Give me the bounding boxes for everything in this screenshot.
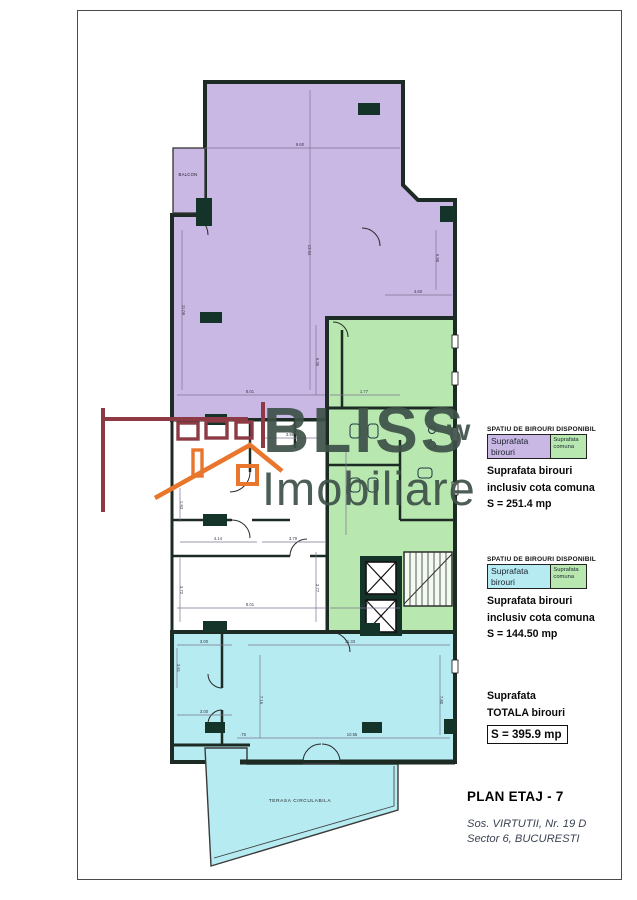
- legend-office-cell: Suprafata birouri: [488, 565, 551, 588]
- dimension-label: 3.72: [179, 586, 184, 595]
- balcony-label: BALCON: [178, 172, 197, 177]
- offer2-line1: Suprafata birouri: [487, 593, 596, 610]
- terrace-label: TERASA CIRCULABILA: [269, 798, 332, 804]
- offer2-legend: Suprafata birouri Suprafata comuna: [487, 564, 587, 589]
- dimension-label: 4.10: [345, 486, 350, 495]
- floor-plan-page: 9.6013.6411.095.904.605.368.011.773.984.…: [0, 0, 637, 900]
- dimension-label: .75: [240, 732, 246, 737]
- dimension-label: 8.01: [246, 602, 255, 607]
- dimension-label: 3.00: [200, 639, 209, 644]
- total-line1: Suprafata: [487, 688, 568, 705]
- dimension-label: 3.61: [176, 664, 181, 673]
- dimension-label: 1.77: [360, 389, 369, 394]
- offer2-line2: inclusiv cota comuna: [487, 610, 596, 627]
- terrace: [205, 748, 398, 866]
- dimension-label: 5.90: [435, 254, 440, 263]
- total-line2: TOTALA birouri: [487, 705, 568, 722]
- staircase: [404, 552, 452, 606]
- offer1-line2: inclusiv cota comuna: [487, 480, 596, 497]
- dimension-label: 3.77: [315, 584, 320, 593]
- dimension-label: 13.64: [307, 245, 312, 256]
- offer1-legend: Suprafata birouri Suprafata comuna: [487, 434, 587, 459]
- dimension-label: 11.33: [345, 639, 356, 644]
- dimension-label: 7.80: [439, 696, 444, 705]
- offer1-line1: Suprafata birouri: [487, 463, 596, 480]
- offer-block-1: SPATIU DE BIROURI DISPONIBIL Suprafata b…: [487, 426, 596, 513]
- dimension-label: 1.77: [360, 602, 369, 607]
- plan-title: PLAN ETAJ - 7: [467, 789, 564, 804]
- offer-block-2: SPATIU DE BIROURI DISPONIBIL Suprafata b…: [487, 556, 596, 643]
- offer2-header: SPATIU DE BIROURI DISPONIBIL: [487, 556, 596, 563]
- dimension-label: 7.16: [259, 696, 264, 705]
- dimension-label: 1.93: [179, 501, 184, 510]
- dimension-label: 5.36: [315, 358, 320, 367]
- cyan-region: [172, 632, 455, 866]
- address-line2: Sector 6, BUCURESTI: [467, 832, 586, 847]
- legend-common-cell: Suprafata comuna: [551, 565, 586, 588]
- dimension-label: 4.60: [414, 289, 423, 294]
- legend-office-cell: Suprafata birouri: [488, 435, 551, 458]
- dimension-label: 3.79: [289, 536, 298, 541]
- dimension-label: 11.09: [181, 305, 186, 316]
- dimension-label: 3.98: [286, 432, 295, 437]
- offer1-area: S = 251.4 mp: [487, 496, 596, 513]
- legend-common-cell: Suprafata comuna: [551, 435, 586, 458]
- total-area-box: S = 395.9 mp: [487, 725, 568, 744]
- dimension-label: 10.55: [347, 732, 358, 737]
- address-block: Sos. VIRTUTII, Nr. 19 D Sector 6, BUCURE…: [467, 817, 586, 847]
- offer1-header: SPATIU DE BIROURI DISPONIBIL: [487, 426, 596, 433]
- dimension-label: 3.00: [200, 709, 209, 714]
- dimension-label: 4.14: [214, 536, 223, 541]
- dimension-label: 8.01: [246, 389, 255, 394]
- dimension-label: 9.60: [296, 142, 305, 147]
- total-block: Suprafata TOTALA birouri S = 395.9 mp: [487, 688, 568, 744]
- address-line1: Sos. VIRTUTII, Nr. 19 D: [467, 817, 586, 832]
- offer2-area: S = 144.50 mp: [487, 626, 596, 643]
